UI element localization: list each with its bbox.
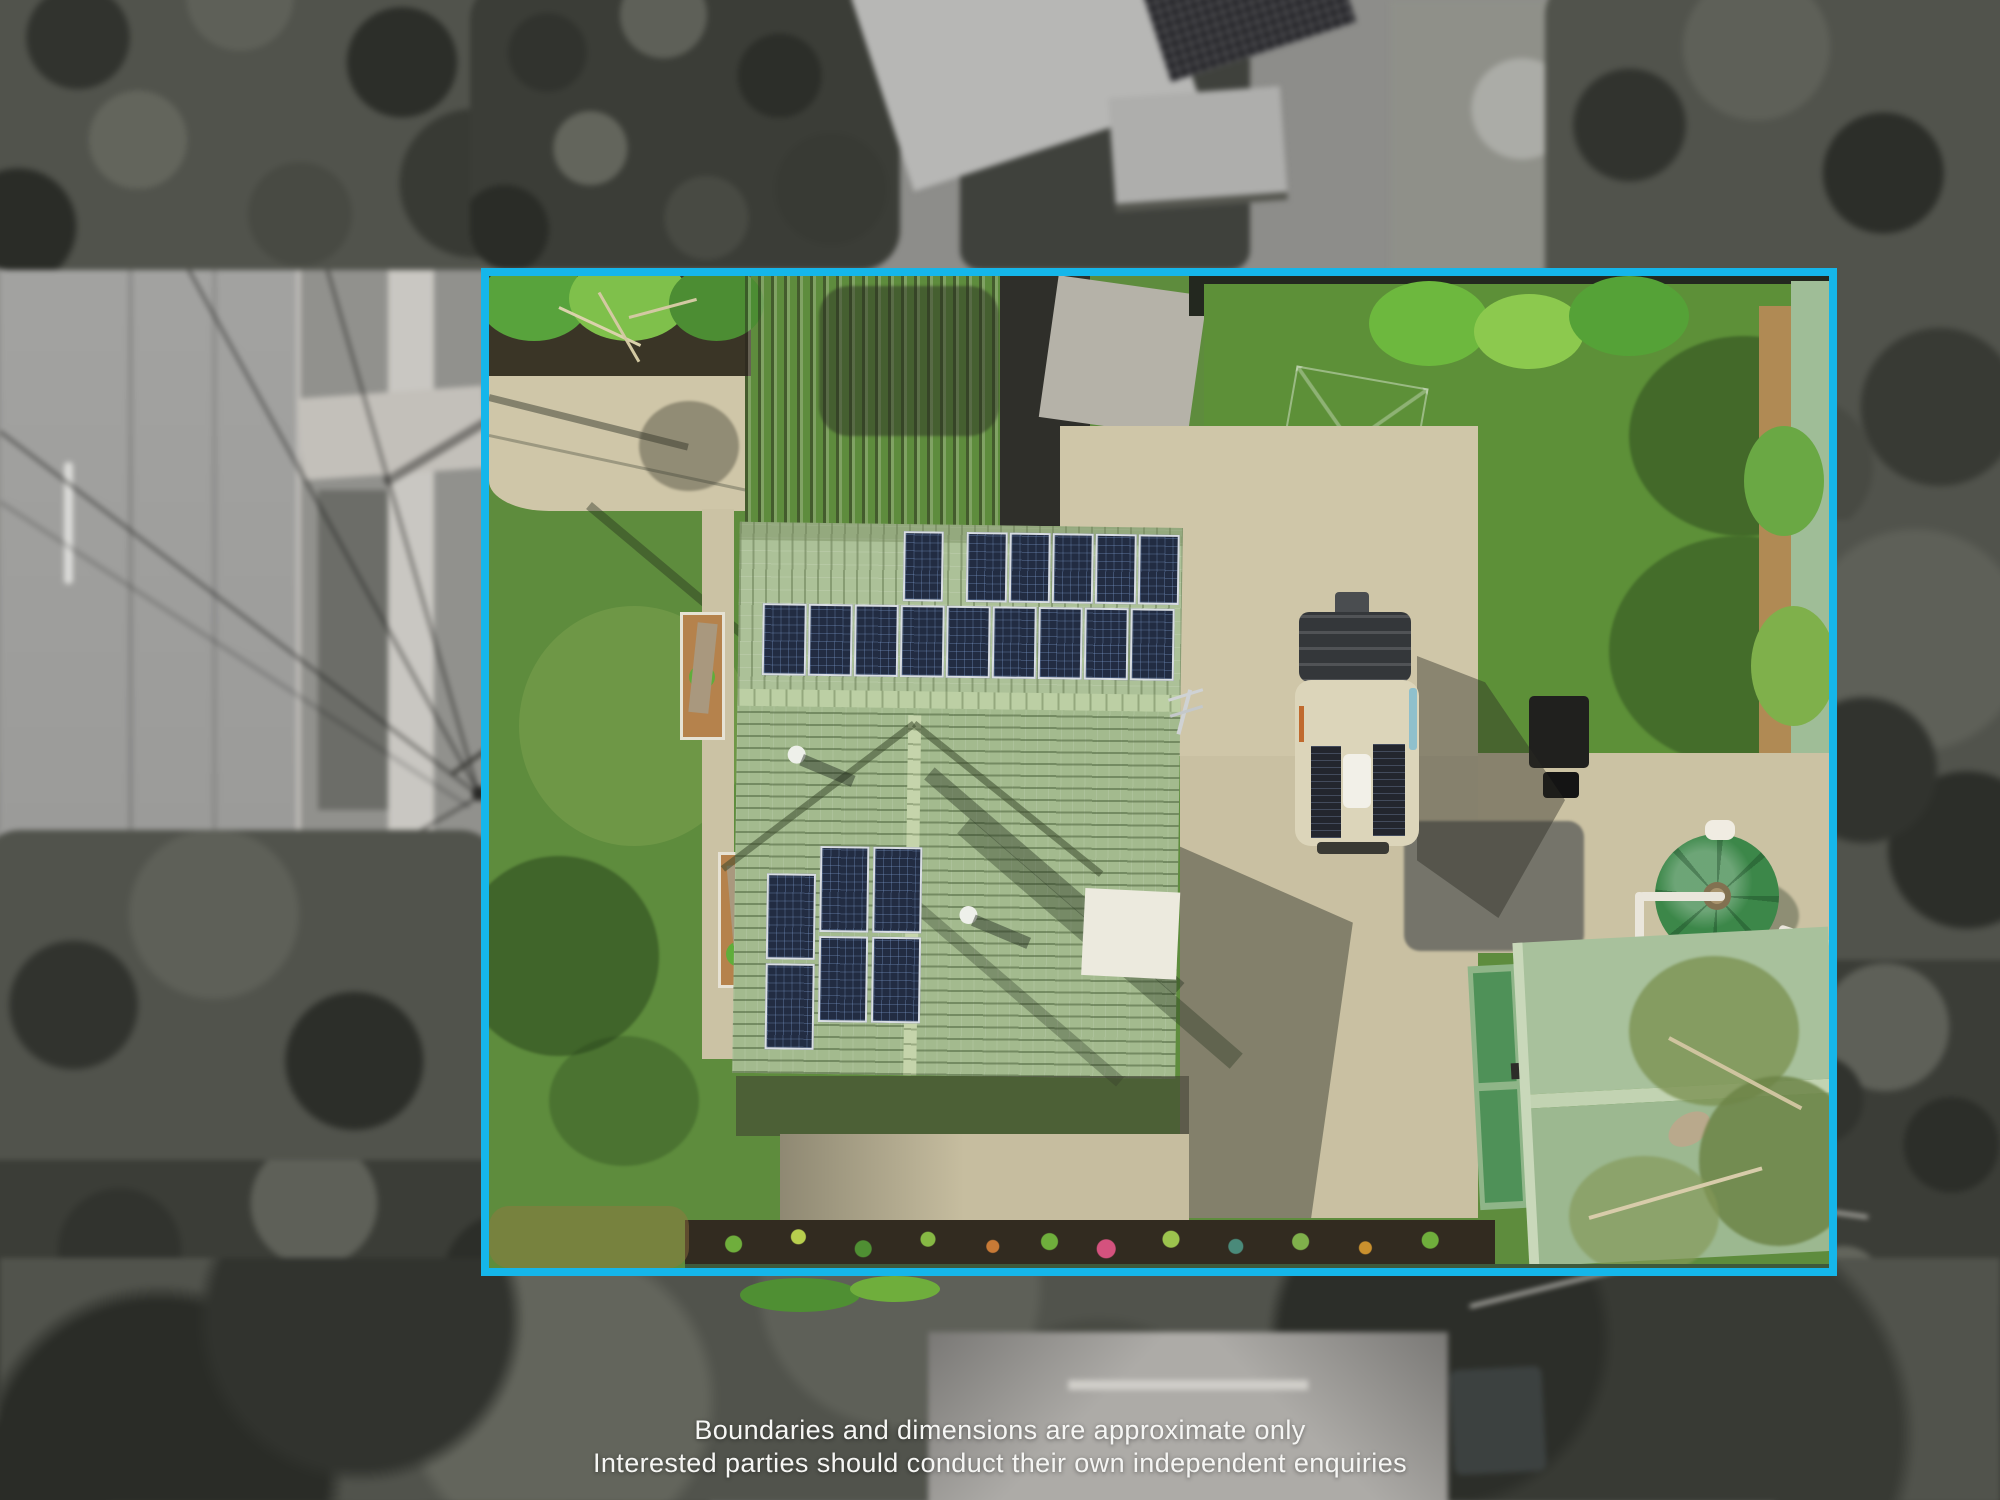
solar-panel: [900, 605, 945, 678]
solar-panel: [765, 963, 815, 1050]
solar-panel: [872, 847, 922, 934]
solar-panel: [1052, 533, 1094, 604]
papaya-bush: [1369, 281, 1489, 366]
solar-panel: [1130, 608, 1175, 681]
lawn-tree-shadow: [481, 856, 659, 1056]
disclaimer-line-1: Boundaries and dimensions are approximat…: [0, 1414, 2000, 1447]
disclaimer-line-2: Interested parties should conduct their …: [0, 1447, 2000, 1480]
solar-panel: [992, 606, 1037, 679]
wing-eave-shadow: [736, 1076, 1189, 1136]
solar-panel: [946, 606, 991, 679]
property-boundary: [481, 268, 1837, 1276]
solar-panel: [808, 604, 853, 677]
solar-panel: [1138, 534, 1180, 605]
leaf-litter: [489, 1206, 689, 1268]
branch-shadow-on-driveway: [639, 401, 739, 491]
solar-panel: [871, 937, 921, 1024]
solar-panel: [819, 846, 869, 933]
garden-bed-west: [680, 612, 725, 740]
bottom-fence-line: [685, 1264, 1834, 1276]
solar-panel: [966, 532, 1008, 603]
pipe-elbow: [1705, 820, 1735, 840]
trees-top-left-dark: [470, 0, 900, 270]
timber-plank: [688, 622, 717, 714]
lawn-tree-shadow: [549, 1036, 699, 1166]
white-pipe: [1639, 892, 1725, 901]
van-cab: [1299, 612, 1411, 682]
neighbour-roof-ridge: [1068, 1380, 1308, 1390]
shed-tree-shadow: [819, 286, 999, 436]
neighbour-shed-roof: [1108, 86, 1288, 212]
solar-panel: [818, 936, 868, 1023]
fence-shrub: [1744, 426, 1824, 536]
solar-panel: [854, 604, 899, 677]
shed-awning-lit: [1039, 275, 1207, 437]
house: [725, 513, 1208, 1095]
solar-panel: [1038, 607, 1083, 680]
van-awning-bar: [1409, 688, 1417, 750]
verge-shadow: [318, 490, 388, 810]
aerial-property-photo: Boundaries and dimensions are approximat…: [0, 0, 2000, 1500]
fence-shrub: [1751, 606, 1836, 726]
disclaimer-caption: Boundaries and dimensions are approximat…: [0, 1414, 2000, 1480]
garden-bush: [1569, 276, 1689, 356]
white-carport-panel: [1081, 888, 1180, 980]
solar-panel: [762, 603, 807, 676]
van-roof-solar: [1311, 746, 1341, 838]
solar-panel: [766, 873, 816, 960]
solar-panel: [1095, 534, 1137, 605]
solar-panel: [1009, 533, 1051, 604]
overflow-leaves: [740, 1278, 860, 1312]
van-roof-vent: [1343, 754, 1371, 808]
overflow-leaves: [850, 1276, 940, 1302]
van-stripe: [1299, 706, 1304, 742]
shed-door: [1479, 1089, 1523, 1203]
patio-concrete: [780, 1134, 1189, 1222]
van-roof-solar: [1373, 744, 1405, 836]
solar-panel: [903, 531, 944, 602]
dark-equipment: [1529, 696, 1589, 768]
van-bumper: [1317, 842, 1389, 854]
garden-bush: [1474, 294, 1584, 369]
flower-garden-bed: [685, 1220, 1495, 1268]
solar-panel: [1084, 608, 1129, 681]
